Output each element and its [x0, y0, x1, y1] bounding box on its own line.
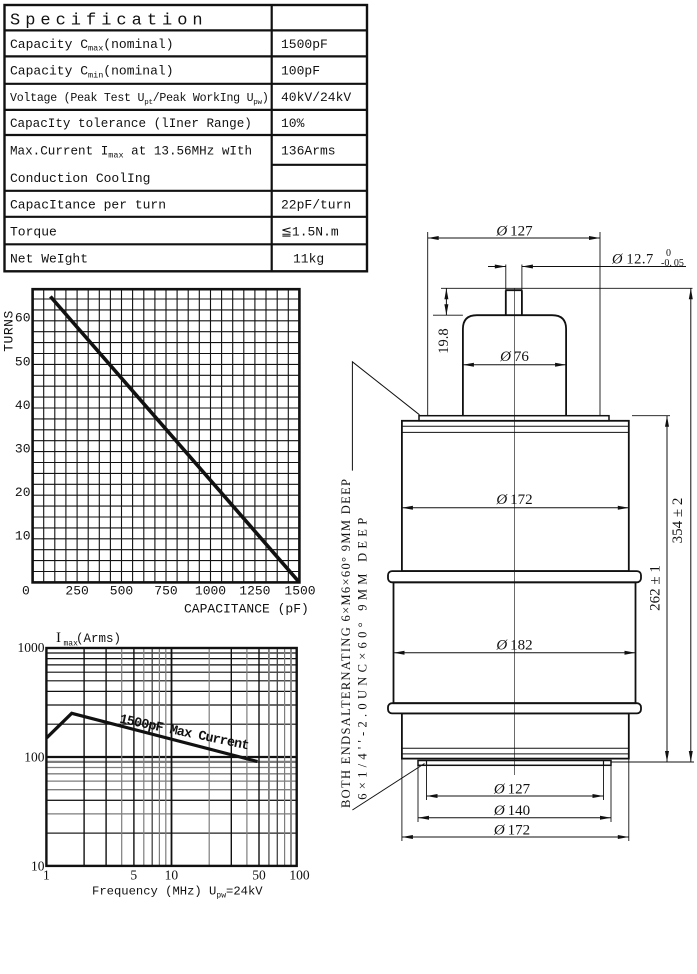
- svg-text:Specification: Specification: [10, 11, 208, 30]
- svg-text:1500: 1500: [284, 584, 315, 599]
- svg-text:1: 1: [43, 868, 50, 883]
- svg-text:I: I: [56, 630, 61, 646]
- svg-text:250: 250: [65, 584, 88, 599]
- svg-text:max: max: [88, 44, 103, 54]
- svg-text:(nominal): (nominal): [103, 64, 173, 79]
- svg-text:Voltage (Peak Test U: Voltage (Peak Test U: [10, 92, 144, 105]
- svg-text:11kg: 11kg: [293, 251, 324, 266]
- svg-text:10: 10: [165, 868, 179, 883]
- svg-text:40kV/24kV: 40kV/24kV: [281, 90, 351, 105]
- svg-text:Ø 12.7: Ø 12.7: [611, 252, 654, 268]
- svg-text:750: 750: [154, 584, 177, 599]
- svg-text:Net WeIght: Net WeIght: [10, 251, 88, 266]
- svg-text:Ø 172: Ø 172: [493, 822, 530, 838]
- svg-text:pw: pw: [216, 891, 226, 900]
- svg-text:1000: 1000: [18, 640, 45, 655]
- svg-text:100pF: 100pF: [281, 64, 320, 79]
- svg-text:6×1/4''-2.0UNC×60° 9MM DEEP: 6×1/4''-2.0UNC×60° 9MM DEEP: [356, 518, 370, 800]
- svg-text:pt: pt: [144, 99, 153, 107]
- svg-text:Capacity C: Capacity C: [10, 64, 88, 79]
- svg-text:min: min: [88, 70, 103, 80]
- svg-text:100: 100: [24, 749, 45, 764]
- svg-text:19.8: 19.8: [436, 328, 452, 353]
- svg-text:(nominal): (nominal): [103, 37, 173, 52]
- svg-text:BOTH ENDSALTERNATING 6×M6×60°: BOTH ENDSALTERNATING 6×M6×60° 9MM DEEP: [339, 479, 353, 808]
- svg-text:1000: 1000: [195, 584, 226, 599]
- svg-text:Ø 172: Ø 172: [495, 492, 532, 508]
- svg-text:10: 10: [15, 529, 31, 544]
- svg-text:Ø 182: Ø 182: [495, 638, 532, 654]
- svg-text:≦1.5N.m: ≦1.5N.m: [281, 224, 339, 239]
- svg-text:500: 500: [110, 584, 133, 599]
- svg-text:50: 50: [252, 868, 266, 883]
- svg-text:50: 50: [15, 354, 31, 369]
- svg-text:max: max: [108, 150, 123, 160]
- svg-text:22pF/turn: 22pF/turn: [281, 197, 351, 212]
- svg-text:Capacity C: Capacity C: [10, 37, 88, 52]
- svg-text:1500pF: 1500pF: [281, 37, 328, 52]
- svg-text:Ø 76: Ø 76: [499, 349, 529, 365]
- svg-text:30: 30: [15, 442, 31, 457]
- svg-text:CapacItance per turn: CapacItance per turn: [10, 197, 166, 212]
- svg-text:CAPACITANCE (pF): CAPACITANCE (pF): [184, 602, 309, 617]
- svg-text:1500pF Max Current: 1500pF Max Current: [118, 713, 250, 755]
- svg-text:60: 60: [15, 311, 31, 326]
- svg-text:262 ± 1: 262 ± 1: [648, 565, 664, 611]
- svg-text:0: 0: [22, 584, 30, 599]
- svg-text:Torque: Torque: [10, 224, 57, 239]
- svg-text:100: 100: [289, 868, 310, 883]
- svg-text:-0. 05: -0. 05: [661, 258, 684, 269]
- svg-text:20: 20: [15, 485, 31, 500]
- svg-text:(Arms): (Arms): [76, 632, 121, 646]
- svg-text:at 13.56MHz wIth: at 13.56MHz wIth: [124, 145, 252, 159]
- svg-text:Frequency (MHz) U: Frequency (MHz) U: [92, 885, 216, 899]
- svg-text:1250: 1250: [239, 584, 270, 599]
- svg-text:): ): [262, 92, 269, 105]
- svg-text:=24kV: =24kV: [226, 885, 263, 899]
- svg-text:CapacIty tolerance (lIner Rang: CapacIty tolerance (lIner Range): [10, 117, 252, 131]
- svg-text:Max.Current I: Max.Current I: [10, 145, 108, 159]
- svg-text:354 ± 2: 354 ± 2: [670, 498, 686, 544]
- svg-text:10%: 10%: [281, 116, 305, 131]
- svg-text:Ø 140: Ø 140: [493, 803, 530, 819]
- svg-text:5: 5: [130, 868, 137, 883]
- svg-text:136Arms: 136Arms: [281, 144, 336, 159]
- svg-text:Conduction CoolIng: Conduction CoolIng: [10, 171, 150, 186]
- svg-text:/Peak WorkIng U: /Peak WorkIng U: [153, 92, 254, 105]
- svg-text:40: 40: [15, 398, 31, 413]
- svg-text:Ø 127: Ø 127: [493, 781, 531, 797]
- svg-text:Ø 127: Ø 127: [495, 224, 533, 240]
